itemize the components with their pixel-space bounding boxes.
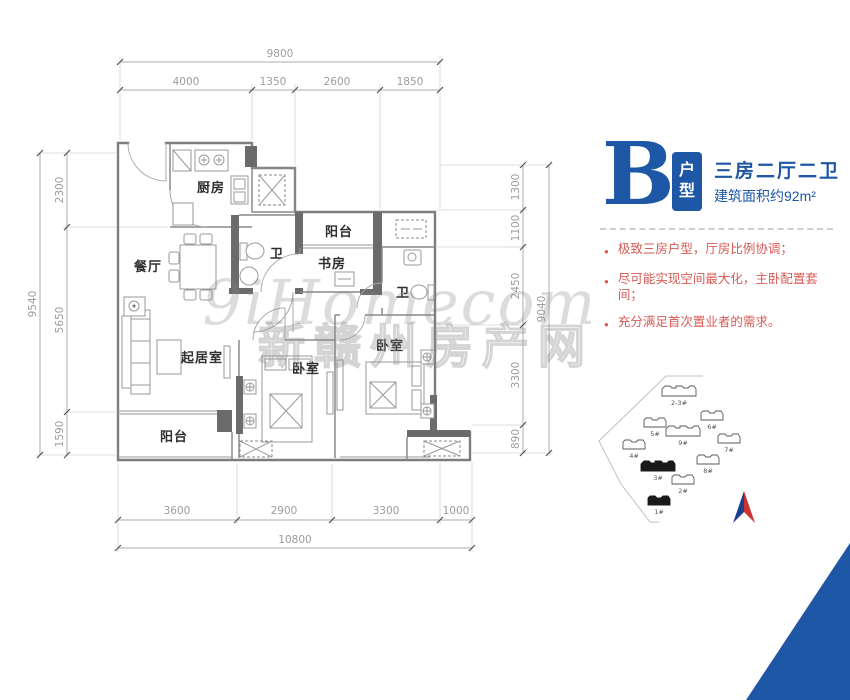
room-label-bedroom-mid: 卧室 [292,361,320,377]
dim-label: 1000 [443,505,470,517]
tv-cabinet-icon [224,346,230,378]
dim-label: 2900 [271,505,298,517]
dim-label: 2450 [510,273,522,300]
dim-label: 3300 [510,362,522,389]
basin-icon [240,267,258,285]
svg-text:8#: 8# [703,467,713,475]
dim-right: 1300 1100 2450 3300 890 9040 [437,162,553,456]
svg-text:7#: 7# [724,446,734,454]
feature-text: 尽可能实现空间最大化，主卧配置套间； [618,271,842,303]
dining-area: 餐厅 [133,234,216,300]
dim-label: 4000 [173,76,200,88]
feature-item: ● 尽可能实现空间最大化，主卧配置套间； [602,271,842,303]
plan-type-badge: 户 型 [672,152,702,211]
svg-text:9#: 9# [678,439,688,447]
dim-label: 2300 [54,177,66,204]
siteplan-building: 3# [641,461,675,482]
badge-char: 型 [679,183,695,201]
balcony-bottom: 阳台 [118,410,232,460]
room-label-bedroom-right: 卧室 [376,338,404,354]
siteplan-building: 7# [718,434,740,454]
room-label-balcony-top: 阳台 [325,224,353,240]
stove-icon [195,150,228,171]
siteplan-building: 2-3# [662,386,696,407]
balcony-top: 阳台 [303,224,373,248]
toilet-icon [240,243,264,260]
room-label-kitchen: 厨房 [197,180,225,196]
site-plan: 2-3# 6# 5# 9# 4# 7# 8# 3# [599,376,740,522]
basin-icon [404,250,421,265]
bullet-icon: ● [604,317,609,333]
siteplan-building: 5# [644,418,666,438]
siteplan-building: 6# [701,411,723,431]
plan-letter: B [602,132,675,218]
room-label-living: 起居室 [180,350,223,366]
ac-platform-top [382,220,435,247]
room-label-balcony-bottom: 阳台 [160,429,188,445]
compass-north-icon [733,491,755,523]
feature-text: 极致三房户型，厅房比例协调； [618,241,793,257]
window-box-icon [244,380,256,428]
svg-text:3#: 3# [653,474,663,482]
dim-label: 9800 [267,48,294,60]
dashed-divider [600,228,833,230]
bullet-icon: ● [604,274,609,290]
plan-area: 建筑面积约92m² [714,186,816,206]
svg-text:2#: 2# [678,487,688,495]
corner-triangle-decoration [746,543,850,700]
dim-label: 3300 [373,505,400,517]
rug-icon [157,340,181,374]
svg-text:1#: 1# [654,508,664,516]
dim-bottom: 3600 2900 3300 1000 10800 [115,462,475,552]
feature-item: ● 极致三房户型，厅房比例协调； [602,241,842,260]
siteplan-building: 2# [672,475,694,495]
dim-label: 890 [510,429,522,449]
dim-label: 9540 [27,291,39,318]
features-list: ● 极致三房户型，厅房比例协调； ● 尽可能实现空间最大化，主卧配置套间； ● … [602,241,842,344]
dim-label: 1100 [510,215,522,242]
feature-text: 充分满足首次置业者的需求。 [618,314,781,330]
feature-item: ● 充分满足首次置业者的需求。 [602,314,842,333]
svg-text:4#: 4# [629,452,639,460]
bedroom-mid: 卧室 [236,308,335,458]
siteplan-building: 9# [666,426,700,447]
plant-table-icon [124,297,145,316]
dim-label: 1350 [260,76,287,88]
dim-label: 5650 [54,307,66,334]
dim-top: 9800 4000 1350 2600 1850 [117,48,443,209]
svg-text:5#: 5# [650,430,660,438]
dim-label: 2600 [324,76,351,88]
dim-label: 3600 [164,505,191,517]
floorplan-page: 9800 4000 1350 2600 1850 3600 2900 3300 … [0,0,850,700]
badge-char: 户 [679,162,695,180]
toilet-icon [411,285,434,300]
room-label-bath1: 卫 [270,247,284,262]
dim-left: 9540 2300 5650 1590 [27,150,168,458]
siteplan-building: 1# [648,496,670,516]
room-label-study: 书房 [318,256,346,272]
ac-platform-bottom-mid [240,441,272,457]
plan-title: 三房二厅二卫 [714,156,840,183]
living-room: 起居室 [122,297,230,394]
siteplan-building: 8# [697,455,719,475]
duct-shaft [245,146,295,212]
dim-label: 10800 [278,534,311,546]
ac-platform-bottom-right [407,430,470,460]
bed-icon [366,362,424,414]
svg-text:2-3#: 2-3# [671,399,687,407]
dim-label: 1300 [510,174,522,201]
room-label-bath2: 卫 [396,286,410,301]
bath-2: 卫 [357,247,434,315]
dim-label: 1590 [54,421,66,448]
dim-label: 9040 [536,296,548,323]
svg-text:6#: 6# [707,423,717,431]
floorplan-canvas: 9800 4000 1350 2600 1850 3600 2900 3300 … [0,0,850,700]
sofa-icon [122,310,150,394]
dim-label: 1850 [397,76,424,88]
siteplan-building: 4# [623,440,645,460]
bullet-icon: ● [604,244,609,260]
room-label-dining: 餐厅 [133,259,162,275]
